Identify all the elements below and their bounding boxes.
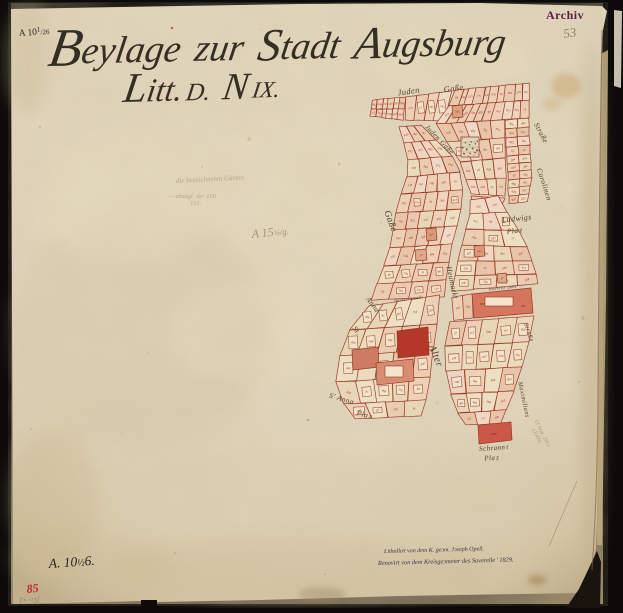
svg-text:182: 182 [466,169,471,173]
svg-text:— abzügl. der 160: — abzügl. der 160 [167,193,217,200]
svg-text:318: 318 [398,113,403,117]
svg-text:367: 367 [503,328,508,332]
svg-text:180: 180 [455,380,460,384]
svg-text:161.: 161. [190,200,202,207]
svg-text:585: 585 [455,110,460,114]
svg-text:635: 635 [491,432,496,436]
svg-text:493: 493 [507,91,512,95]
svg-text:360: 360 [509,131,514,135]
svg-text:712: 712 [467,417,472,421]
svg-text:576: 576 [491,93,496,97]
svg-text:484: 484 [346,366,351,370]
svg-text:815: 815 [471,185,476,189]
svg-text:60: 60 [417,387,421,391]
svg-text:703: 703 [411,166,416,170]
svg-text:233: 233 [521,196,526,200]
svg-text:775: 775 [499,185,504,189]
svg-text:526: 526 [476,204,481,208]
svg-text:872: 872 [436,163,441,167]
svg-text:439: 439 [499,354,504,358]
svg-text:568: 568 [369,339,374,343]
svg-text:142: 142 [408,183,413,187]
svg-text:637: 637 [521,304,526,308]
svg-text:562: 562 [523,181,528,185]
svg-text:707: 707 [418,148,423,152]
svg-text:Pla z: Pla z [505,225,523,236]
svg-text:Archiv: Archiv [546,8,584,22]
svg-text:fɔ—ɪ ʒ f: fɔ—ɪ ʒ f [20,595,41,604]
svg-text:617: 617 [522,188,527,192]
svg-text:633: 633 [480,302,485,306]
svg-text:53: 53 [562,24,577,41]
svg-text:934: 934 [396,236,401,240]
svg-text:Pla z: Pla z [483,453,500,462]
svg-text:891: 891 [497,166,502,170]
svg-text:483: 483 [521,121,526,125]
svg-text:85: 85 [26,581,39,596]
